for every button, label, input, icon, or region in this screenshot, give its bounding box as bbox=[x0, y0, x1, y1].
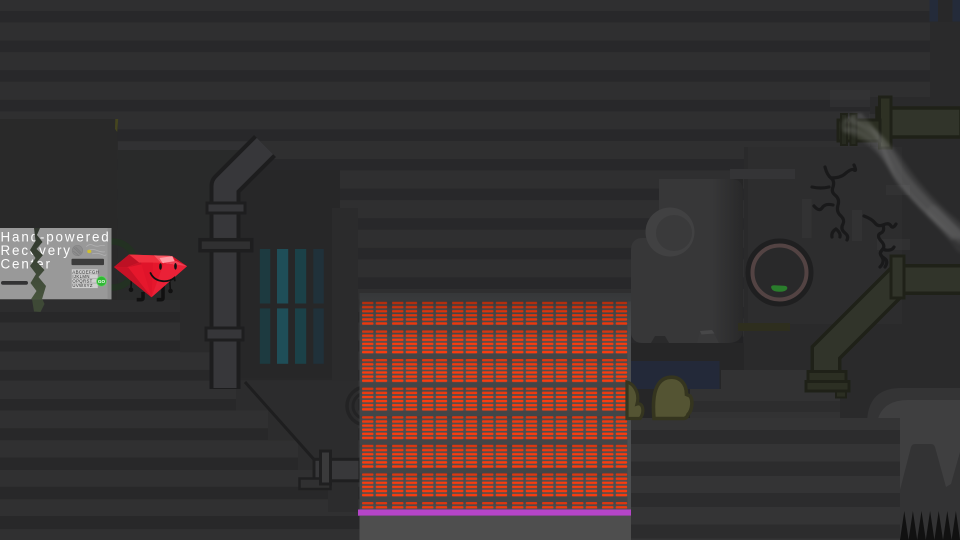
svg-text:GO: GO bbox=[98, 279, 106, 284]
svg-text:Center: Center bbox=[1, 256, 52, 271]
svg-text:UVWXYZ: UVWXYZ bbox=[72, 283, 93, 288]
